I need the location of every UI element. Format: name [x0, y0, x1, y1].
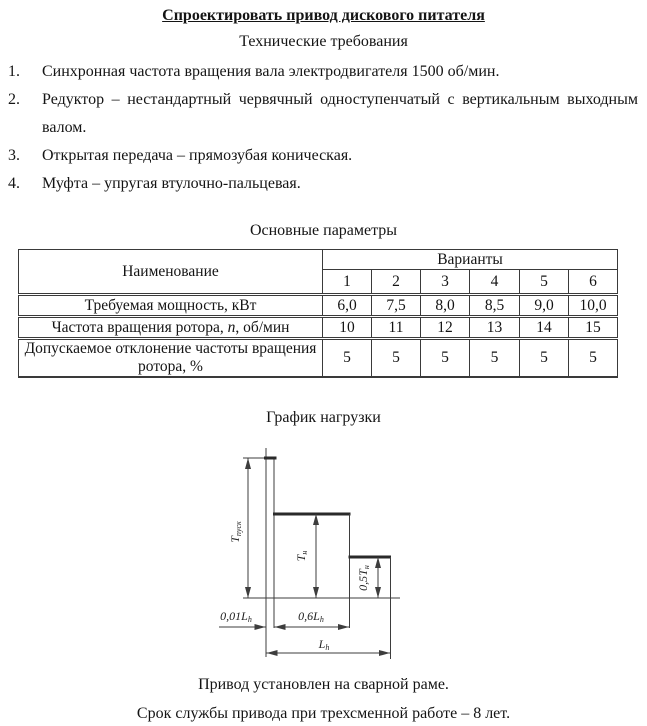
param-label-text: Частота вращения ротора, [52, 319, 228, 336]
document-page: Спроектировать привод дискового питателя… [0, 0, 647, 726]
param-value-cell: 5 [470, 339, 520, 378]
param-label-cell: Требуемая мощность, кВт [19, 295, 323, 317]
load-graph-caption: График нагрузки [0, 407, 647, 428]
param-label-cell: Допускаемое отклонение частоты вращения … [19, 339, 323, 378]
footer-note-service-life: Срок службы привода при трехсменной рабо… [0, 700, 647, 726]
requirement-number: 3. [0, 142, 42, 170]
variant-number-cell: 4 [470, 270, 520, 295]
variants-header-cell: Варианты [323, 250, 618, 270]
param-value-cell: 5 [421, 339, 470, 378]
param-value-cell: 10 [323, 317, 372, 339]
param-value-cell: 12 [421, 317, 470, 339]
load-graph-figure: Tпуск Tн 0,5Tн 0,01Lh 0,6Lh Lh [0, 428, 647, 670]
param-label-cell: Частота вращения ротора, n, об/мин [19, 317, 323, 339]
footer-note-frame: Привод установлен на сварной раме. [0, 671, 647, 699]
requirement-number: 1. [0, 58, 42, 86]
param-label-text: , об/мин [235, 319, 289, 336]
param-value-cell: 5 [323, 339, 372, 378]
label-t-start: Tпуск [228, 521, 243, 543]
params-table: Наименование Варианты 1 2 3 4 5 6 Требуе… [18, 249, 618, 378]
param-value-cell: 5 [569, 339, 618, 378]
variant-number-cell: 1 [323, 270, 372, 295]
requirement-item: 3. Открытая передача – прямозубая кониче… [0, 142, 647, 170]
name-header-cell: Наименование [19, 250, 323, 295]
param-value-cell: 9,0 [520, 295, 569, 317]
label-x-mid: 0,6Lh [298, 609, 324, 624]
requirement-text: Редуктор – нестандартный червячный однос… [42, 86, 647, 142]
requirement-number: 4. [0, 170, 42, 198]
requirement-item: 1. Синхронная частота вращения вала элек… [0, 58, 647, 86]
doc-title: Спроектировать привод дискового питателя [0, 5, 647, 26]
param-value-cell: 13 [470, 317, 520, 339]
load-graph-drawing: Tпуск Tн 0,5Tн 0,01Lh 0,6Lh Lh [0, 428, 647, 670]
label-t-nominal: Tн [294, 551, 309, 562]
requirement-text: Муфта – упругая втулочно-пальцевая. [42, 170, 647, 198]
param-value-cell: 5 [372, 339, 421, 378]
requirement-number: 2. [0, 86, 42, 142]
variant-number-cell: 3 [421, 270, 470, 295]
param-value-cell: 14 [520, 317, 569, 339]
param-value-cell: 7,5 [372, 295, 421, 317]
variant-number-cell: 6 [569, 270, 618, 295]
variant-number-cell: 2 [372, 270, 421, 295]
param-value-cell: 8,0 [421, 295, 470, 317]
param-value-cell: 11 [372, 317, 421, 339]
label-x-start: 0,01Lh [220, 609, 252, 624]
params-table-caption: Основные параметры [0, 220, 647, 241]
doc-subtitle: Технические требования [0, 31, 647, 52]
requirement-item: 4. Муфта – упругая втулочно-пальцевая. [0, 170, 647, 198]
param-value-cell: 10,0 [569, 295, 618, 317]
label-x-total: Lh [318, 637, 330, 652]
requirements-list: 1. Синхронная частота вращения вала элек… [0, 58, 647, 198]
param-value-cell: 5 [520, 339, 569, 378]
variant-number-cell: 5 [520, 270, 569, 295]
param-value-cell: 6,0 [323, 295, 372, 317]
requirement-item: 2. Редуктор – нестандартный червячный од… [0, 86, 647, 142]
requirement-text: Синхронная частота вращения вала электро… [42, 58, 647, 86]
label-t-half: 0,5Tн [356, 565, 371, 591]
param-value-cell: 15 [569, 317, 618, 339]
requirement-text: Открытая передача – прямозубая коническа… [42, 142, 647, 170]
param-value-cell: 8,5 [470, 295, 520, 317]
